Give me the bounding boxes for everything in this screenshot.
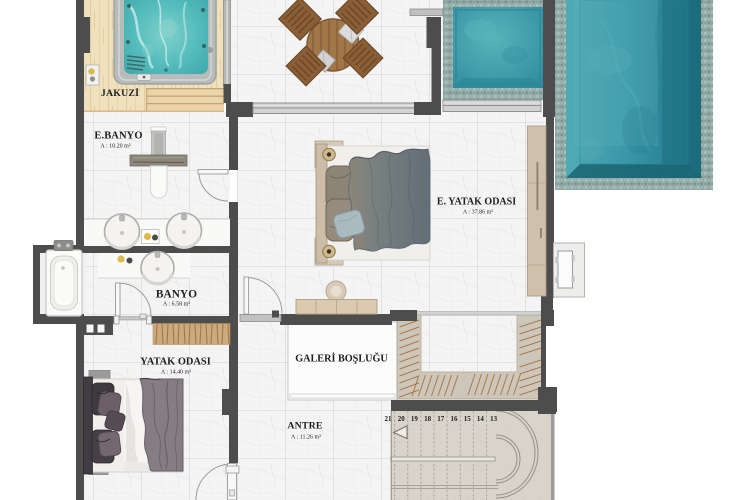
svg-text:A : 37.86 m²: A : 37.86 m² <box>463 210 493 216</box>
svg-text:ANTRE: ANTRE <box>287 421 323 432</box>
svg-text:A : 11.26 m²: A : 11.26 m² <box>291 435 321 441</box>
svg-text:20: 20 <box>398 415 406 423</box>
svg-text:YATAK ODASI: YATAK ODASI <box>140 357 211 368</box>
svg-text:JAKUZİ: JAKUZİ <box>101 87 139 99</box>
svg-text:E.BANYO: E.BANYO <box>94 131 142 142</box>
svg-text:13: 13 <box>490 415 498 423</box>
svg-text:15: 15 <box>464 415 472 423</box>
svg-text:21: 21 <box>385 415 393 423</box>
svg-text:BANYO: BANYO <box>156 289 197 301</box>
svg-text:A : 14.40 m²: A : 14.40 m² <box>161 370 191 376</box>
svg-text:GALERİ BOŞLUĞU: GALERİ BOŞLUĞU <box>295 352 388 365</box>
svg-text:18: 18 <box>424 415 432 423</box>
svg-text:19: 19 <box>411 415 419 423</box>
svg-text:17: 17 <box>437 415 445 423</box>
svg-text:A : 6.58 m²: A : 6.58 m² <box>163 302 190 308</box>
svg-text:14: 14 <box>477 415 485 423</box>
svg-text:16: 16 <box>451 415 459 423</box>
svg-text:E. YATAK ODASI: E. YATAK ODASI <box>437 197 516 208</box>
svg-text:A : 10.20 m²: A : 10.20 m² <box>100 144 130 150</box>
